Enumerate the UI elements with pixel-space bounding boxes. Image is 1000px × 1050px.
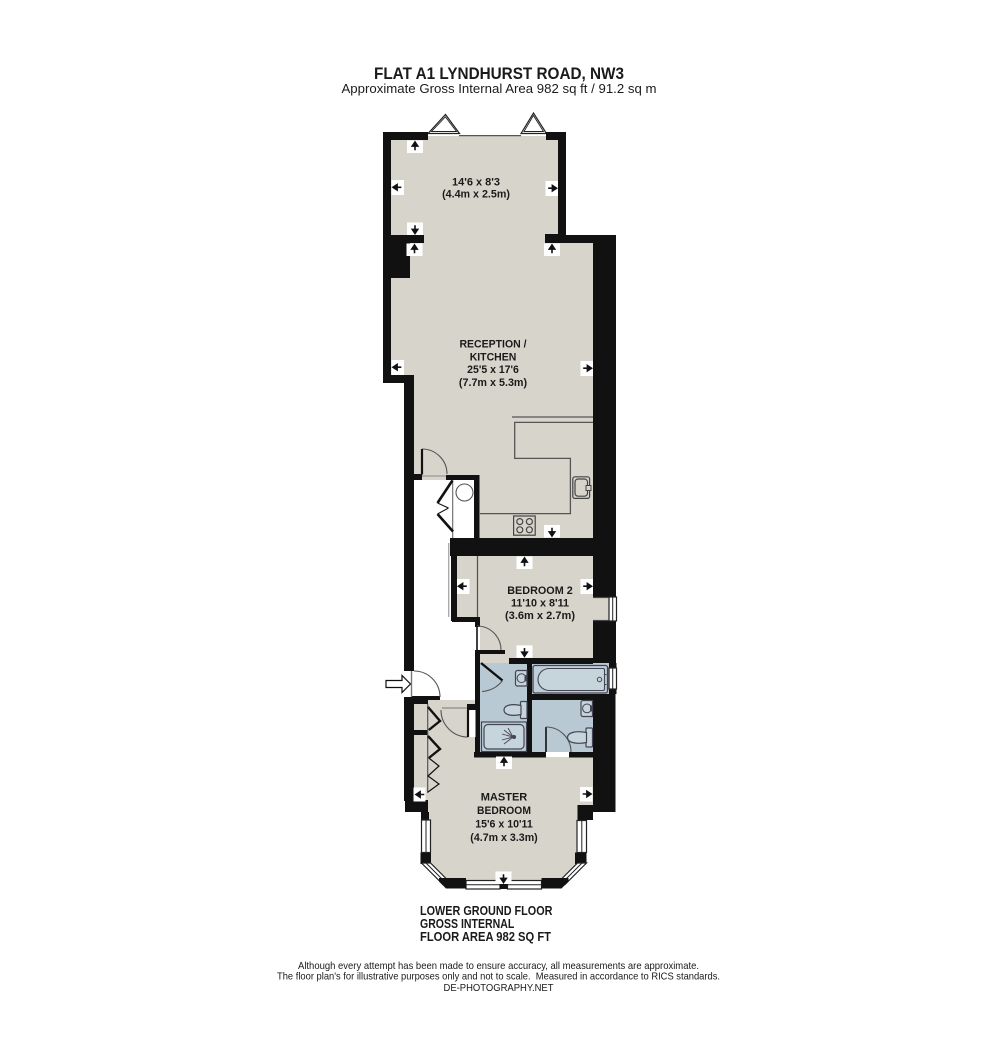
- svg-text:BEDROOM 2: BEDROOM 2: [507, 585, 573, 597]
- svg-text:14'6 x 8'3: 14'6 x 8'3: [452, 177, 500, 189]
- svg-text:11'10 x 8'11: 11'10 x 8'11: [511, 598, 569, 610]
- svg-text:(7.7m x 5.3m): (7.7m x 5.3m): [459, 377, 528, 389]
- svg-text:(4.7m x 3.3m): (4.7m x 3.3m): [470, 832, 538, 844]
- svg-text:(4.4m x 2.5m): (4.4m x 2.5m): [442, 189, 510, 201]
- svg-text:15'6 x 10'11: 15'6 x 10'11: [475, 818, 533, 830]
- svg-text:RECEPTION /: RECEPTION /: [459, 339, 526, 351]
- svg-text:Approximate Gross Internal Are: Approximate Gross Internal Area 982 sq f…: [342, 82, 657, 96]
- svg-text:The floor plan's for illustrat: The floor plan's for illustrative purpos…: [277, 971, 720, 982]
- svg-text:FLOOR AREA 982 SQ FT: FLOOR AREA 982 SQ FT: [420, 929, 551, 944]
- svg-text:Although every attempt has bee: Although every attempt has been made to …: [298, 961, 699, 972]
- svg-text:MASTER: MASTER: [481, 791, 528, 803]
- svg-text:KITCHEN: KITCHEN: [470, 351, 517, 363]
- svg-text:BEDROOM: BEDROOM: [477, 805, 531, 817]
- svg-text:DE-PHOTOGRAPHY.NET: DE-PHOTOGRAPHY.NET: [444, 983, 555, 994]
- svg-text:FLAT A1 LYNDHURST ROAD, NW3: FLAT A1 LYNDHURST ROAD, NW3: [374, 64, 624, 83]
- svg-text:25'5 x 17'6: 25'5 x 17'6: [467, 364, 519, 376]
- svg-text:(3.6m x 2.7m): (3.6m x 2.7m): [505, 610, 575, 622]
